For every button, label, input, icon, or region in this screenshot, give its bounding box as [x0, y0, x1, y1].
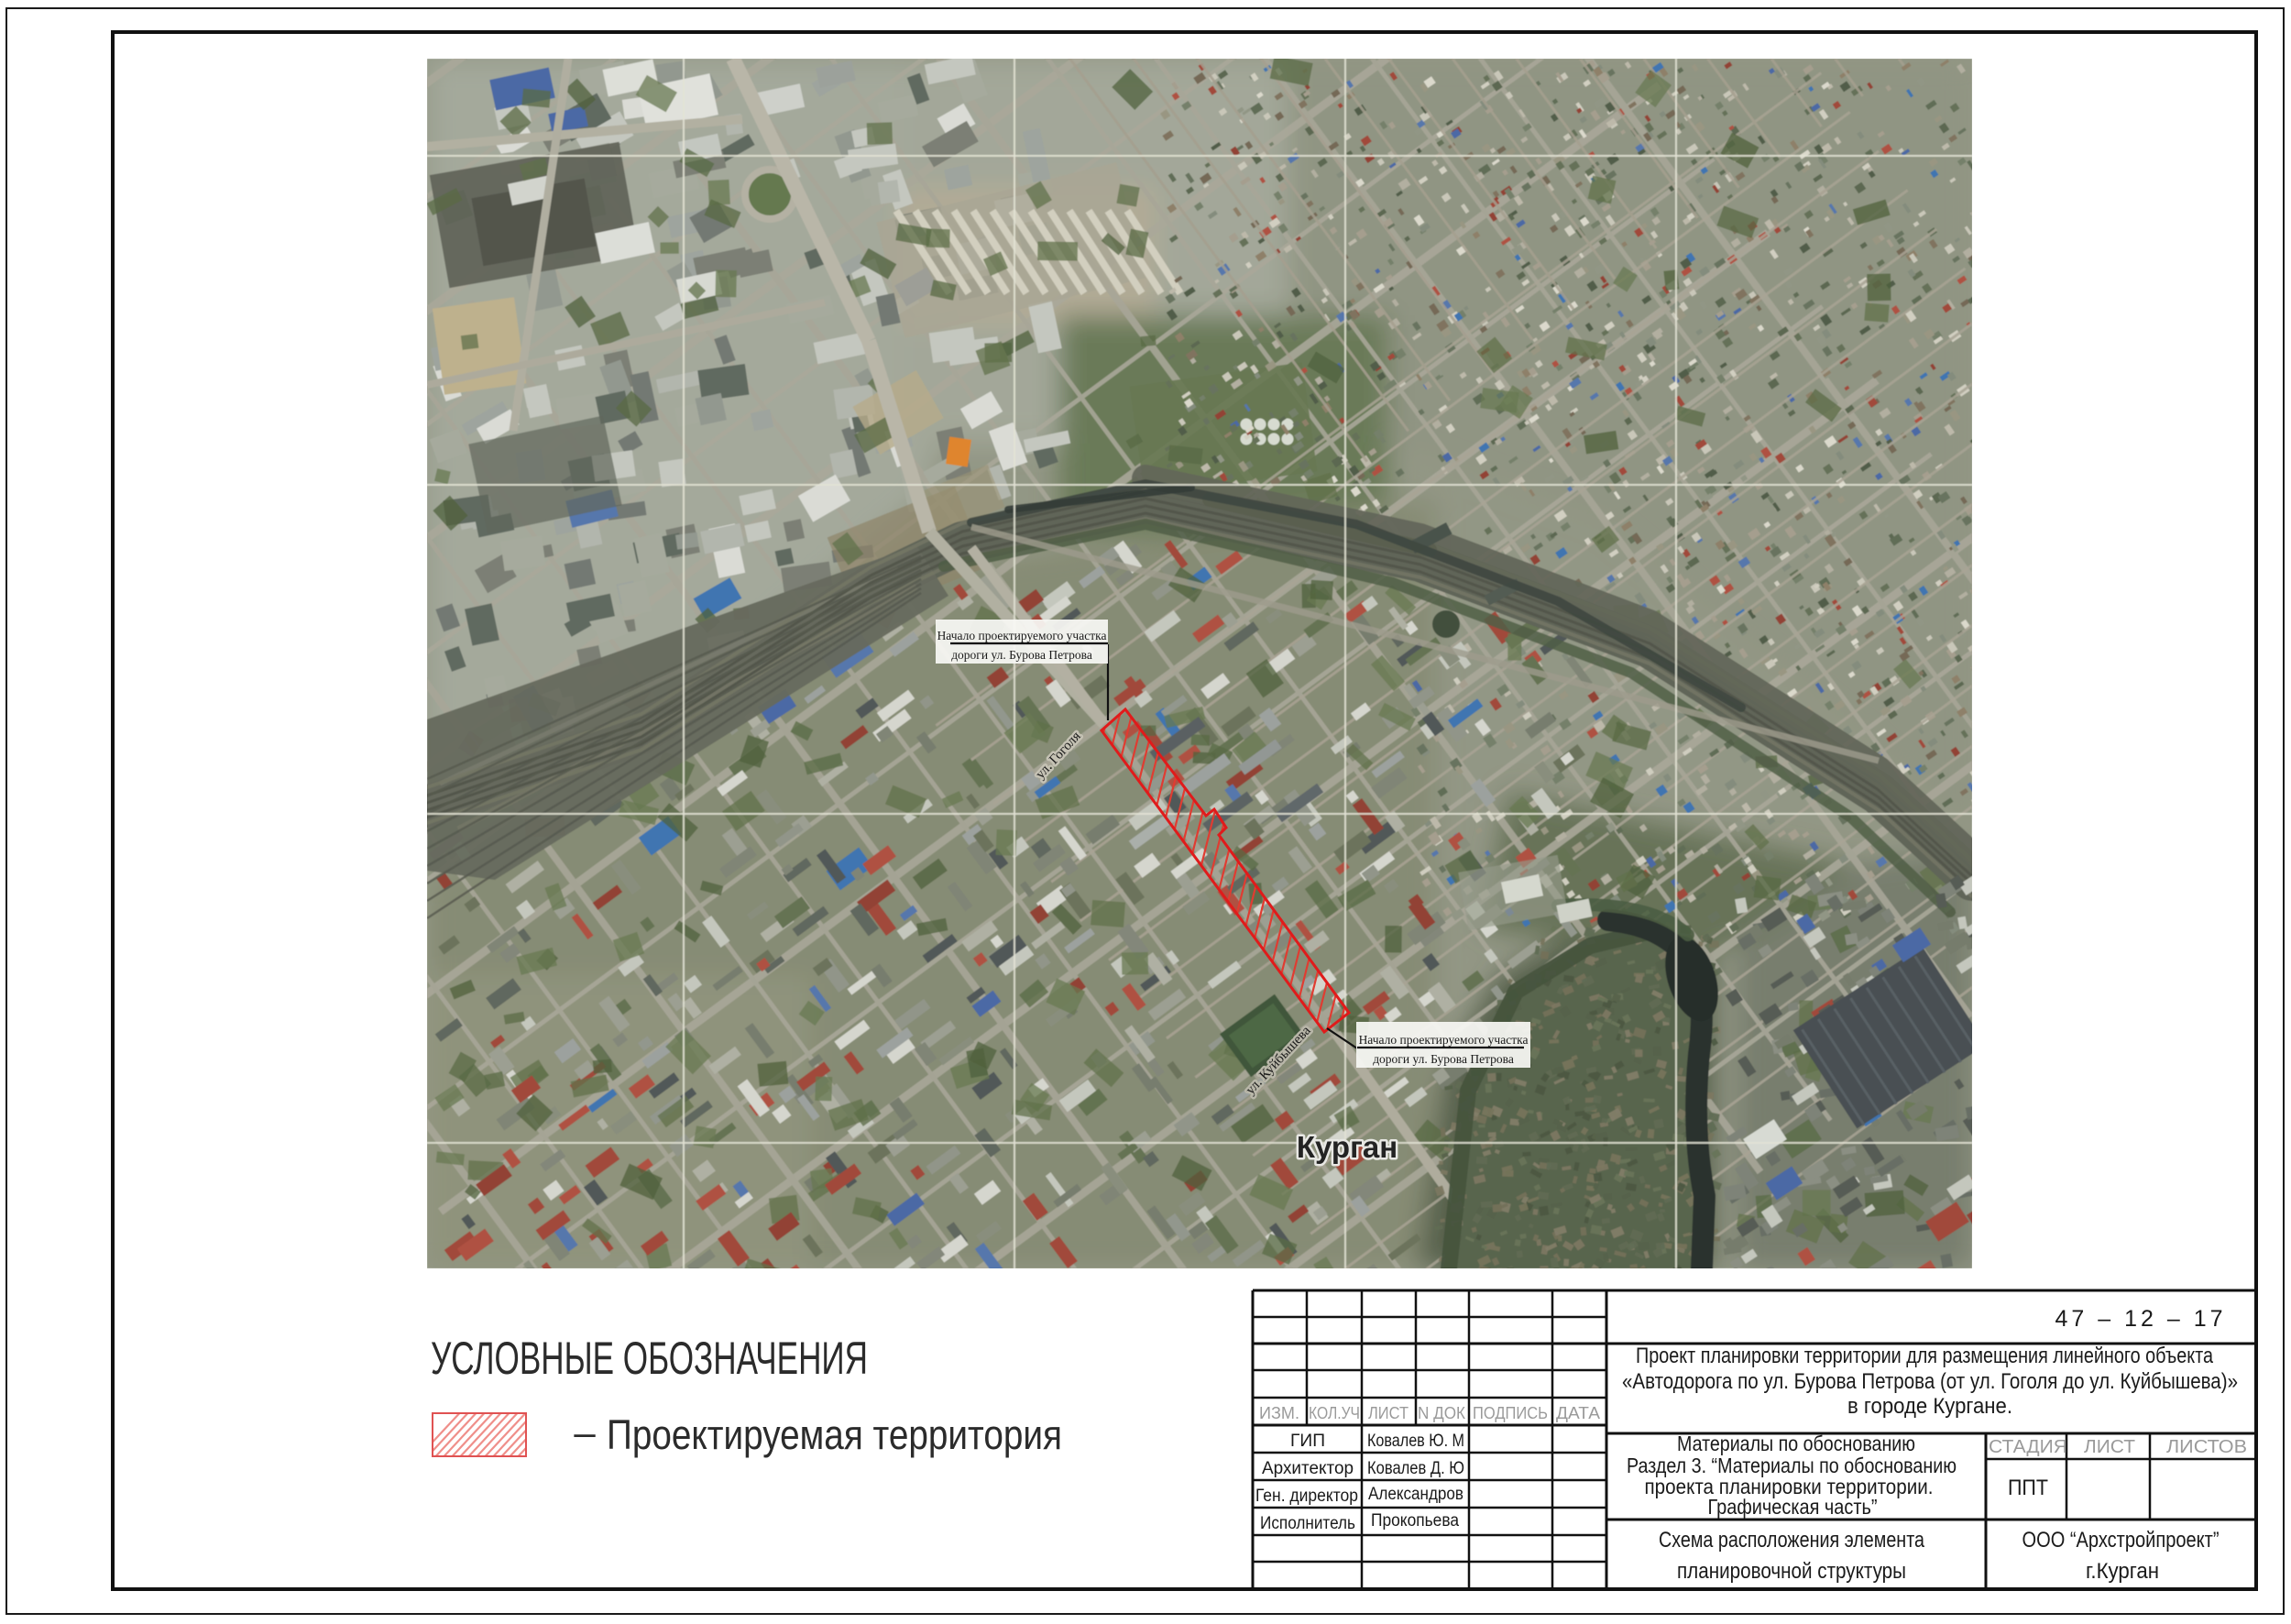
svg-text:ООО “Архстройпроект”: ООО “Архстройпроект” — [2022, 1528, 2220, 1553]
svg-text:СТАДИЯ: СТАДИЯ — [1989, 1437, 2067, 1457]
svg-text:Графическая часть”: Графическая часть” — [1708, 1495, 1878, 1519]
svg-text:Курган: Курган — [1297, 1130, 1398, 1164]
svg-text:Прокопьева: Прокопьева — [1371, 1511, 1459, 1531]
svg-text:КОЛ.УЧ: КОЛ.УЧ — [1309, 1404, 1360, 1422]
svg-text:ПОДПИСЬ: ПОДПИСЬ — [1473, 1404, 1548, 1422]
svg-text:ЛИСТОВ: ЛИСТОВ — [2166, 1437, 2247, 1457]
svg-text:ДАТА: ДАТА — [1556, 1404, 1600, 1422]
svg-text:–: – — [574, 1410, 596, 1454]
svg-text:Материалы по обоснованию: Материалы по обоснованию — [1677, 1432, 1915, 1455]
svg-text:г.Курган: г.Курган — [2086, 1559, 2159, 1584]
svg-text:Ген. директор: Ген. директор — [1255, 1487, 1358, 1506]
svg-text:Проектируемая территория: Проектируемая территория — [607, 1411, 1062, 1458]
svg-text:Начало проектируемого участка: Начало проектируемого участка — [937, 629, 1107, 642]
svg-text:«Автодорога по ул. Бурова Петр: «Автодорога по ул. Бурова Петрова (от ул… — [1622, 1369, 2238, 1394]
svg-text:Ковалев Д. Ю: Ковалев Д. Ю — [1367, 1459, 1464, 1478]
svg-text:в городе Кургане.: в городе Кургане. — [1847, 1394, 2012, 1419]
svg-text:дороги ул. Бурова Петрова: дороги ул. Бурова Петрова — [951, 648, 1092, 662]
svg-text:ЛИСТ: ЛИСТ — [1368, 1404, 1409, 1422]
svg-text:Александров: Александров — [1368, 1485, 1463, 1504]
svg-text:Начало проектируемого участка: Начало проектируемого участка — [1359, 1033, 1529, 1047]
svg-text:планировочной структуры: планировочной структуры — [1677, 1559, 1906, 1584]
svg-text:Схема расположения элемента: Схема расположения элемента — [1659, 1528, 1925, 1553]
svg-text:Исполнитель: Исполнитель — [1260, 1514, 1355, 1533]
svg-text:Архитектор: Архитектор — [1262, 1459, 1354, 1478]
svg-text:N ДОК: N ДОК — [1418, 1404, 1465, 1422]
svg-text:47 – 12 – 17: 47 – 12 – 17 — [2055, 1306, 2226, 1332]
svg-text:ЛИСТ: ЛИСТ — [2084, 1437, 2135, 1457]
svg-text:ППТ: ППТ — [2008, 1476, 2048, 1500]
svg-text:Ковалев Ю. М: Ковалев Ю. М — [1367, 1432, 1464, 1451]
svg-text:ГИП: ГИП — [1290, 1432, 1325, 1451]
svg-text:Проект планировки территории д: Проект планировки территории для размеще… — [1636, 1344, 2214, 1368]
svg-text:ИЗМ.: ИЗМ. — [1259, 1404, 1299, 1422]
svg-text:УСЛОВНЫЕ ОБОЗНАЧЕНИЯ: УСЛОВНЫЕ ОБОЗНАЧЕНИЯ — [431, 1333, 868, 1384]
svg-text:дороги ул. Бурова Петрова: дороги ул. Бурова Петрова — [1373, 1052, 1514, 1066]
